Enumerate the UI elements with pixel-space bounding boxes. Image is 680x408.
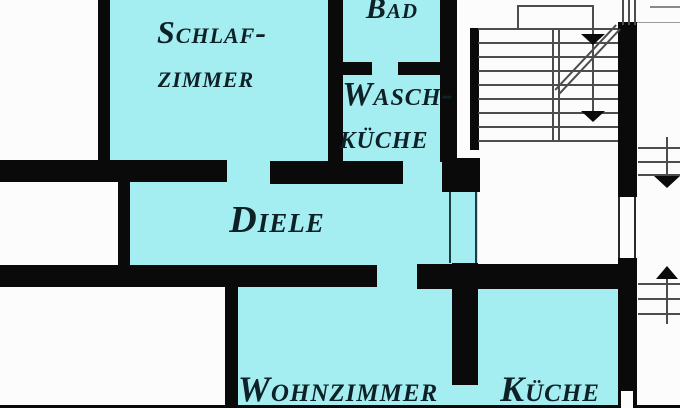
marker-line <box>638 313 680 315</box>
stairwell-line <box>628 0 630 25</box>
stair-tread-line <box>478 98 618 100</box>
stairwell-line <box>634 0 636 25</box>
wall-bad-wasch-left <box>342 62 372 75</box>
label-wohnzimmer: Wohnzimmer <box>238 371 438 407</box>
label-bad: Bad <box>366 0 418 24</box>
label-waschkueche-line1: Wasch- <box>342 78 454 112</box>
stair-tread-line <box>478 28 618 30</box>
wall-horizontal-b <box>270 161 403 184</box>
marker-shaft <box>666 137 668 177</box>
stair-tread-line <box>478 84 618 86</box>
label-waschkueche-line2: küche <box>339 121 428 155</box>
marker-line <box>638 298 680 300</box>
stair-tread-line <box>478 126 618 128</box>
label-kueche: Küche <box>500 371 600 407</box>
wall-horizontal-c <box>0 265 377 287</box>
wall-wohnzimmer-left <box>225 287 238 408</box>
wall-corner-chunk <box>442 158 480 192</box>
arrow-up-icon <box>656 266 678 279</box>
wall-diele-left <box>118 178 130 267</box>
kueche-window-notch <box>621 391 633 408</box>
stair-tread-line <box>478 70 618 72</box>
stairwell-line <box>622 0 624 25</box>
wall-exterior-right-upper <box>618 22 637 197</box>
label-schlafzimmer-line1: Schlaf- <box>157 16 267 48</box>
entrance-door-line-left <box>449 192 451 263</box>
stairwell-line <box>650 6 680 8</box>
stair-mid-rail <box>552 28 554 140</box>
stair-tread-line <box>478 140 618 142</box>
door-jamb-left <box>618 197 620 258</box>
wall-horizontal-d <box>417 264 637 289</box>
marker-shaft <box>666 279 668 324</box>
stair-upper-outline-top <box>517 5 593 7</box>
marker-line <box>638 161 680 163</box>
stair-arrow-shaft <box>592 5 594 115</box>
door-jamb-right <box>634 197 636 258</box>
wall-bad-wasch-right <box>398 62 440 75</box>
marker-line <box>638 283 680 285</box>
floor-plan: Schlaf- zimmer Bad Wasch- küche Diele Wo… <box>0 0 680 408</box>
wall-wohnzimmer-kueche <box>452 263 478 385</box>
stair-arrow-down-icon <box>581 111 605 122</box>
entrance-door-line-right <box>475 192 477 263</box>
arrow-down-icon <box>654 176 680 188</box>
stair-tread-line <box>478 56 618 58</box>
stairwell-line <box>637 22 680 23</box>
label-diele: Diele <box>229 201 324 239</box>
marker-line <box>638 147 680 149</box>
label-schlafzimmer-line2: zimmer <box>158 60 254 92</box>
stair-left-edge <box>470 28 479 150</box>
wall-horizontal-a <box>0 160 227 182</box>
wall-left-upper <box>98 0 110 164</box>
stair-upper-outline-left <box>517 5 519 28</box>
wall-exterior-right-lower <box>618 258 637 408</box>
